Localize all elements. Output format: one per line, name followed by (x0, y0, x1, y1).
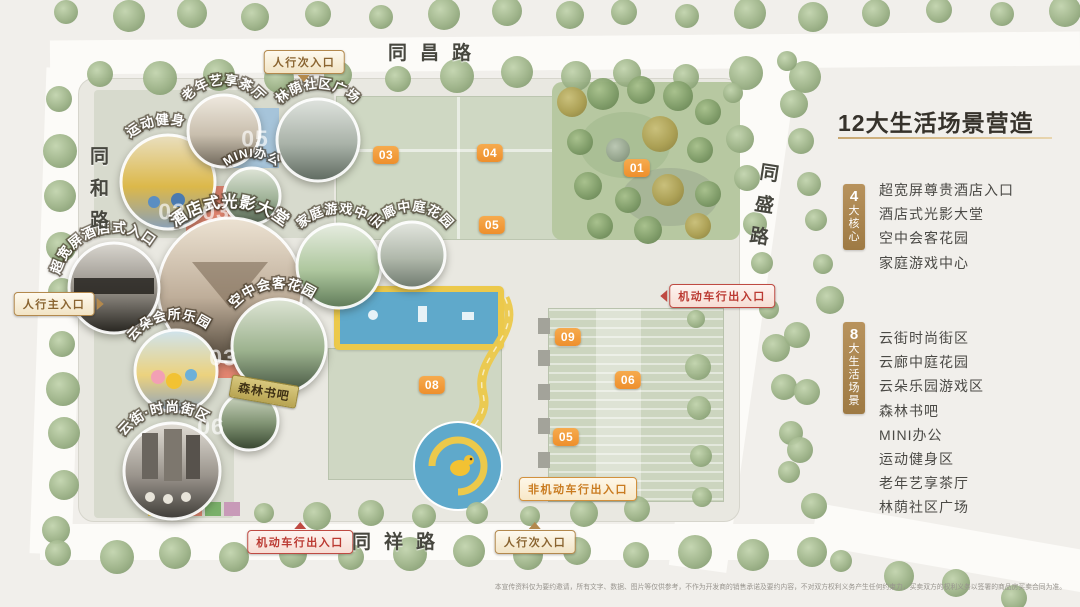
legend-item-0-0: 超宽屏尊贵酒店入口 (879, 178, 1014, 202)
tree-icon (49, 470, 79, 500)
tree-icon (801, 493, 827, 519)
tree-icon (737, 539, 769, 571)
tree-icon (695, 99, 721, 125)
tree-icon (830, 550, 852, 572)
legend-item-0-1: 酒店式光影大堂 (879, 202, 1014, 226)
entrance-arrow-up-icon (529, 522, 541, 529)
tree-icon (642, 116, 678, 152)
tree-icon (692, 487, 712, 507)
entrance-arrow-up-icon (294, 522, 306, 529)
tree-icon (219, 542, 249, 572)
building-number-badge-04-2: 04 (477, 144, 503, 162)
legend-badge-char: 生 (843, 356, 865, 369)
tree-icon (561, 61, 591, 91)
tree-icon (813, 254, 833, 274)
tree-icon (369, 5, 393, 29)
entrance-label: 非机动车行出入口 (528, 484, 628, 496)
tree-icon (54, 0, 78, 24)
tree-icon (453, 535, 485, 567)
building-number-badge-08-4: 08 (419, 376, 445, 394)
tree-icon (787, 437, 813, 463)
legend-item-list-0: 超宽屏尊贵酒店入口酒店式光影大堂空中会客花园家庭游戏中心 (865, 178, 1014, 275)
faint-building-number-03-1: 03 (202, 199, 230, 226)
tree-icon (623, 542, 649, 568)
tree-icon (784, 322, 810, 348)
balcony-stub (538, 318, 550, 334)
legend-item-1-2: 云朵乐园游戏区 (879, 374, 984, 398)
court-icon (418, 306, 427, 322)
tree-icon (788, 128, 814, 154)
tree-icon (556, 1, 584, 29)
entrance-badge-0: 人行次入口 (264, 50, 345, 74)
entrance-badge-1: 人行主入口 (14, 292, 95, 316)
entrance-badge-4: 机动车行出入口 (247, 530, 353, 554)
tree-icon (797, 537, 827, 567)
balcony-stub (538, 418, 550, 434)
tree-icon (816, 286, 844, 314)
tree-icon (241, 3, 269, 31)
tree-icon (466, 502, 488, 524)
tree-icon (652, 174, 684, 206)
tree-icon (777, 51, 797, 71)
building-number-badge-03-1: 03 (373, 146, 399, 164)
legend-group-badge-1: 8大生活场景 (843, 322, 865, 414)
tree-icon (44, 180, 76, 212)
balcony-stub (538, 384, 550, 400)
tree-icon (574, 172, 602, 200)
tree-icon (43, 134, 77, 168)
page-title: 12大生活场景营造 (838, 104, 1034, 138)
legend-item-1-4: MINI办公 (879, 423, 984, 447)
legend-item-0-3: 家庭游戏中心 (879, 251, 1014, 275)
building-number-badge-05-3: 05 (479, 216, 505, 234)
tree-icon (690, 445, 712, 467)
legend-badge-char: 场 (843, 382, 865, 395)
road-label-tongxiang: 同祥路 (352, 527, 448, 554)
tree-icon (358, 500, 384, 526)
faint-building-number-03-3: 03 (209, 345, 237, 372)
tree-icon (87, 61, 113, 87)
legend-item-1-0: 云街时尚街区 (879, 326, 984, 350)
legend-group-0: 4大核心超宽屏尊贵酒店入口酒店式光影大堂空中会客花园家庭游戏中心 (843, 178, 1014, 275)
tree-icon (428, 0, 460, 30)
tree-icon (687, 137, 713, 163)
road-label-tonghe: 同和路 (84, 146, 111, 242)
tree-icon (611, 0, 637, 25)
faint-building-number-06-4: 06 (197, 414, 225, 441)
tree-icon (627, 76, 655, 104)
tree-icon (46, 86, 72, 112)
tree-icon (305, 1, 331, 27)
entrance-arrow-left-icon (660, 290, 667, 302)
building-number-badge-01-0: 01 (624, 159, 650, 177)
tree-icon (492, 0, 522, 26)
tree-icon (685, 213, 711, 239)
tree-icon (794, 379, 820, 405)
legend-item-1-6: 老年艺享茶厅 (879, 471, 984, 495)
tree-icon (780, 90, 808, 118)
legend-item-1-5: 运动健身区 (879, 447, 984, 471)
tree-icon (46, 372, 80, 406)
building-number-badge-05-7: 05 (553, 428, 579, 446)
entrance-label: 机动车行出入口 (256, 537, 344, 549)
tree-icon (385, 66, 411, 92)
legend-badge-char: 活 (843, 369, 865, 382)
tree-icon (203, 59, 235, 91)
tree-icon (771, 374, 797, 400)
tree-icon (685, 354, 711, 380)
legend-badge-char: 大 (843, 343, 865, 356)
tree-icon (663, 81, 693, 111)
entrance-badge-5: 人行次入口 (495, 530, 576, 554)
tree-icon (990, 2, 1014, 26)
entrance-badge-3: 非机动车行出入口 (519, 477, 637, 501)
entrance-label: 机动车行出入口 (678, 291, 766, 303)
tree-icon (100, 540, 134, 574)
tree-icon (1049, 0, 1080, 27)
legend-badge-number: 4 (843, 189, 865, 205)
tree-icon (687, 396, 711, 420)
entrance-label: 人行次入口 (273, 57, 336, 69)
legend-badge-char: 大 (843, 205, 865, 218)
tree-icon (570, 499, 598, 527)
balcony-stub (538, 452, 550, 468)
faint-building-number-02-0: 02 (158, 199, 186, 226)
entrance-label: 人行主入口 (23, 299, 86, 311)
tree-icon (695, 181, 721, 207)
tree-icon (143, 61, 177, 95)
tree-icon (159, 537, 191, 569)
building-number-badge-06-6: 06 (615, 371, 641, 389)
shopfront-strip (148, 502, 240, 516)
tree-icon (615, 187, 641, 213)
legend-badge-char: 景 (843, 395, 865, 408)
court-icon (368, 310, 378, 320)
tree-icon (678, 535, 712, 569)
legend-item-list-1: 云街时尚街区云廊中庭花园云朵乐园游戏区森林书吧MINI办公运动健身区老年艺享茶厅… (865, 326, 984, 520)
tree-icon (567, 129, 593, 155)
building-center-08 (328, 348, 502, 480)
tree-icon (798, 2, 828, 32)
entrance-badge-2: 机动车行出入口 (669, 284, 775, 308)
court-icon (462, 312, 474, 320)
tree-icon (177, 0, 207, 28)
tree-icon (862, 0, 890, 27)
building-number-badge-09-5: 09 (555, 328, 581, 346)
tree-icon (45, 540, 71, 566)
tree-icon (634, 216, 662, 244)
legend-item-0-2: 空中会客花园 (879, 226, 1014, 250)
legend-group-badge-0: 4大核心 (843, 184, 865, 250)
site-plan-canvas: 运动健身老年艺享茶厅林荫社区广场MINI办公酒店式光影大堂超宽屏酒店式入口家庭游… (0, 0, 1080, 607)
legend-group-1: 8大生活场景云街时尚街区云廊中庭花园云朵乐园游戏区森林书吧MINI办公运动健身区… (843, 322, 984, 520)
road-label-tongchang: 同昌路 (388, 38, 484, 65)
tree-icon (587, 78, 619, 110)
tree-icon (48, 417, 80, 449)
tree-icon (734, 0, 766, 29)
tree-icon (501, 56, 533, 88)
playground-top-court (340, 292, 498, 344)
legend-item-1-1: 云廊中庭花园 (879, 350, 984, 374)
legend-badge-char: 心 (843, 231, 865, 244)
tree-icon (587, 213, 613, 239)
disclaimer-text: 本宣传资料仅为要约邀请，所有文字、数据、图片等仅供参考，不作为开发商的销售承诺及… (495, 581, 1066, 591)
tree-icon (687, 310, 705, 328)
tree-icon (557, 87, 587, 117)
balcony-stub (538, 350, 550, 366)
tree-icon (723, 83, 743, 103)
tree-icon (254, 503, 274, 523)
legend-item-1-7: 林荫社区广场 (879, 495, 984, 519)
tree-icon (926, 0, 952, 23)
entrance-arrow-right-icon (96, 298, 103, 310)
legend-badge-char: 核 (843, 218, 865, 231)
tree-icon (675, 4, 699, 28)
entrance-label: 人行次入口 (504, 537, 567, 549)
faint-building-number-05-2: 05 (241, 126, 269, 153)
legend-badge-number: 8 (843, 327, 865, 343)
legend-item-1-3: 森林书吧 (879, 399, 984, 423)
tree-icon (797, 172, 821, 196)
tree-icon (412, 504, 436, 528)
tree-icon (778, 461, 800, 483)
tree-icon (113, 0, 145, 32)
entrance-arrow-down-icon (298, 75, 310, 82)
title-underline (838, 137, 1052, 139)
tree-icon (805, 209, 827, 231)
